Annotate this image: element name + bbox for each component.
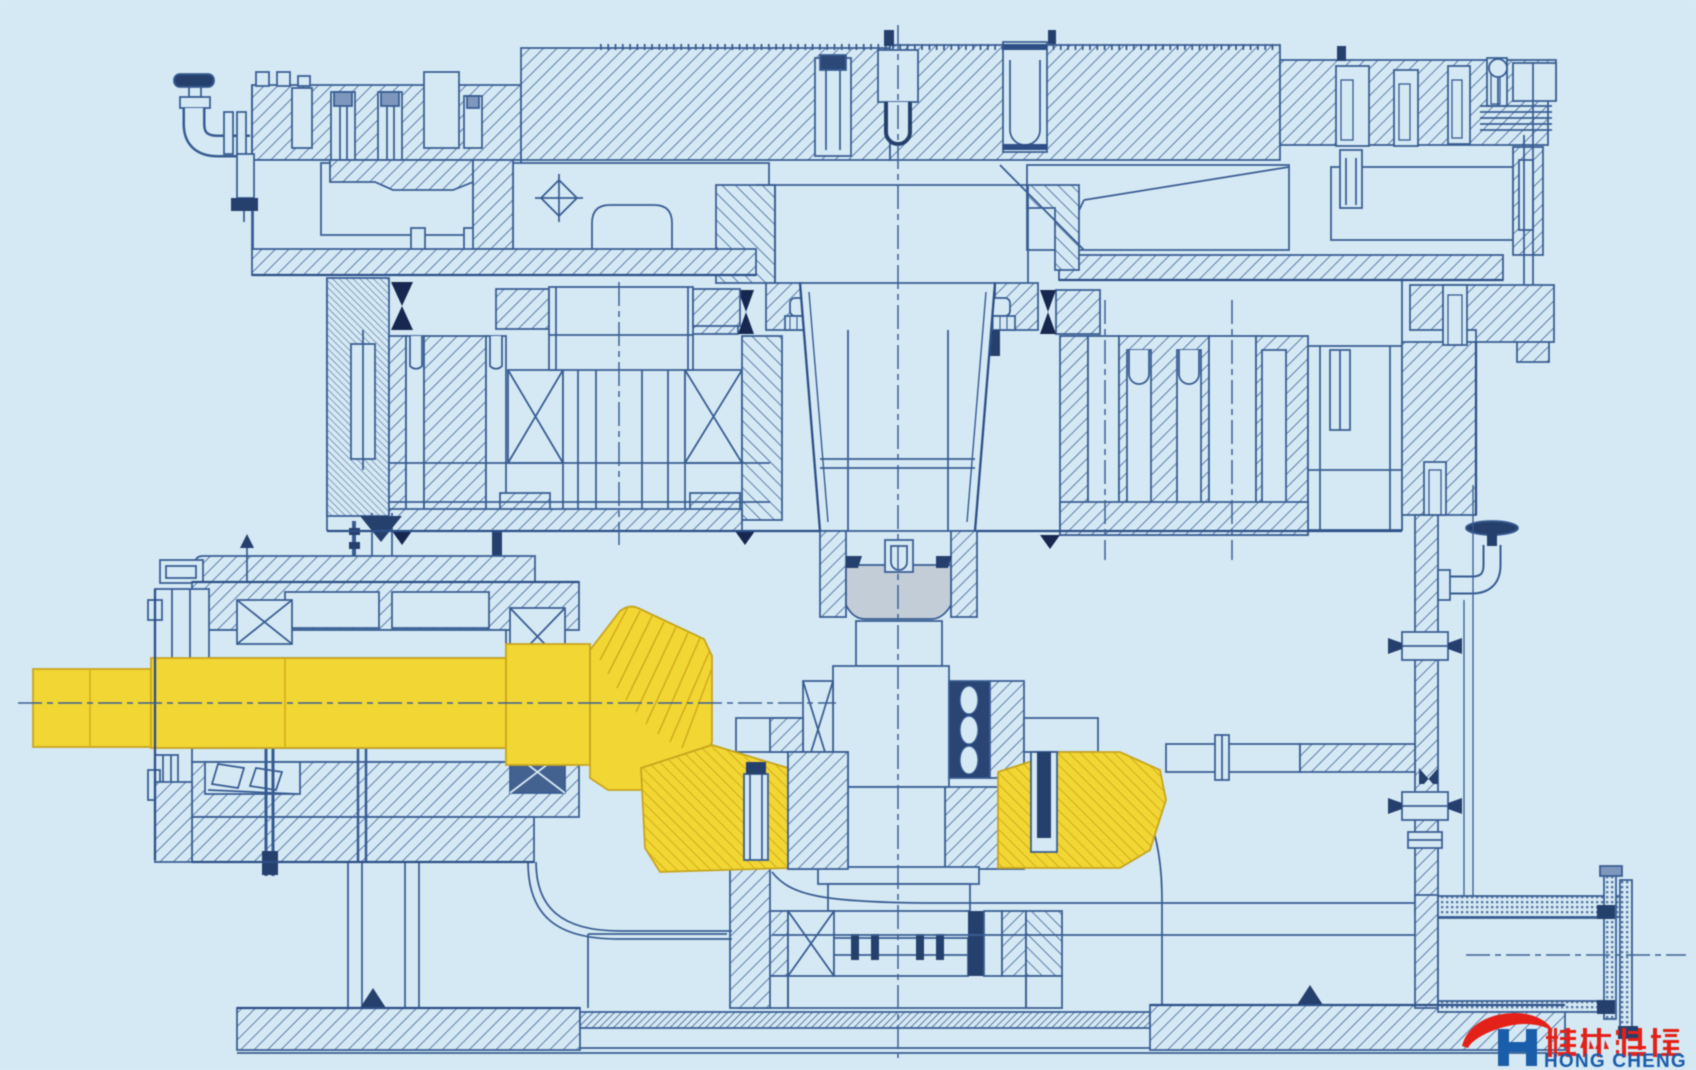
svg-text:HONG CHENG: HONG CHENG [1544,1051,1687,1070]
